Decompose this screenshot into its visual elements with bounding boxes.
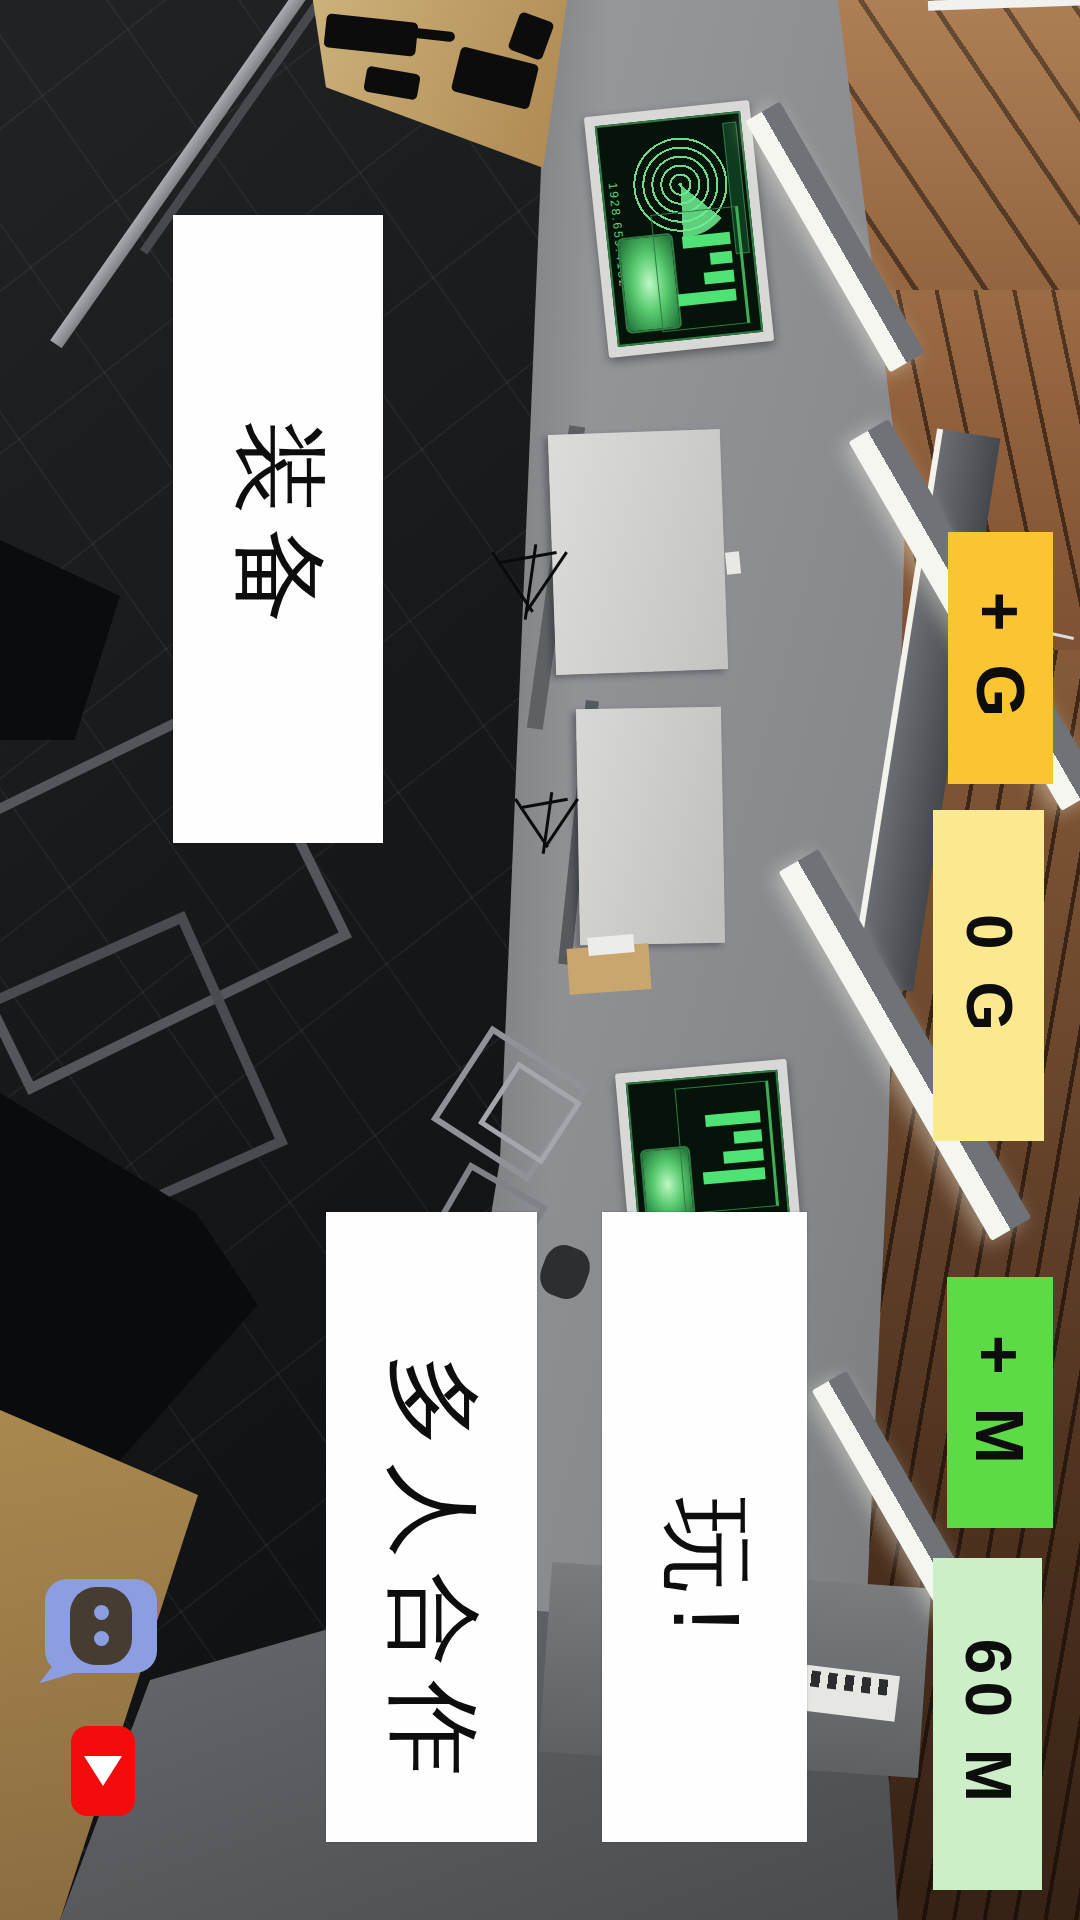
bar-chart-panel [650,206,750,333]
discord-button[interactable] [45,1579,157,1673]
radar-monitor: 1928.659.4132 [584,100,774,358]
discord-speech-bubble-icon [70,1587,132,1665]
add-gold-label: + G [962,592,1040,725]
projection-screen [548,429,728,675]
game-lobby-screen: 1928.659.4132 [0,0,1080,1920]
money-count-badge[interactable]: 60 M [933,1558,1042,1890]
youtube-button[interactable] [71,1726,135,1816]
gun-barrel [413,28,456,42]
camera-tripod [495,538,565,622]
gun-silhouette [323,13,418,56]
add-gold-button[interactable]: + G [948,532,1053,784]
equipment-button-label: 装备 [214,420,342,638]
gun-silhouette [507,11,555,61]
add-money-label: + M [961,1334,1039,1470]
multiplayer-button-label: 多人合作 [368,1354,496,1790]
radar-screen: 1928.659.4132 [595,111,763,347]
equipment-button[interactable]: 装备 [173,215,383,843]
play-button-label: 玩! [641,1497,769,1646]
gold-count-label: 0 G [952,913,1026,1037]
money-count-label: 60 M [951,1639,1025,1809]
multiplayer-button[interactable]: 多人合作 [326,1212,537,1842]
projection-screen [576,707,725,945]
bar-chart-panel [674,1080,779,1214]
add-money-button[interactable]: + M [947,1277,1053,1528]
play-button[interactable]: 玩! [602,1212,807,1842]
wall-bracket [725,551,741,574]
youtube-play-icon [84,1756,122,1786]
radar-screen [626,1070,790,1233]
gold-count-badge[interactable]: 0 G [933,810,1044,1141]
gun-silhouette [363,66,421,101]
camera-tripod [518,788,578,858]
